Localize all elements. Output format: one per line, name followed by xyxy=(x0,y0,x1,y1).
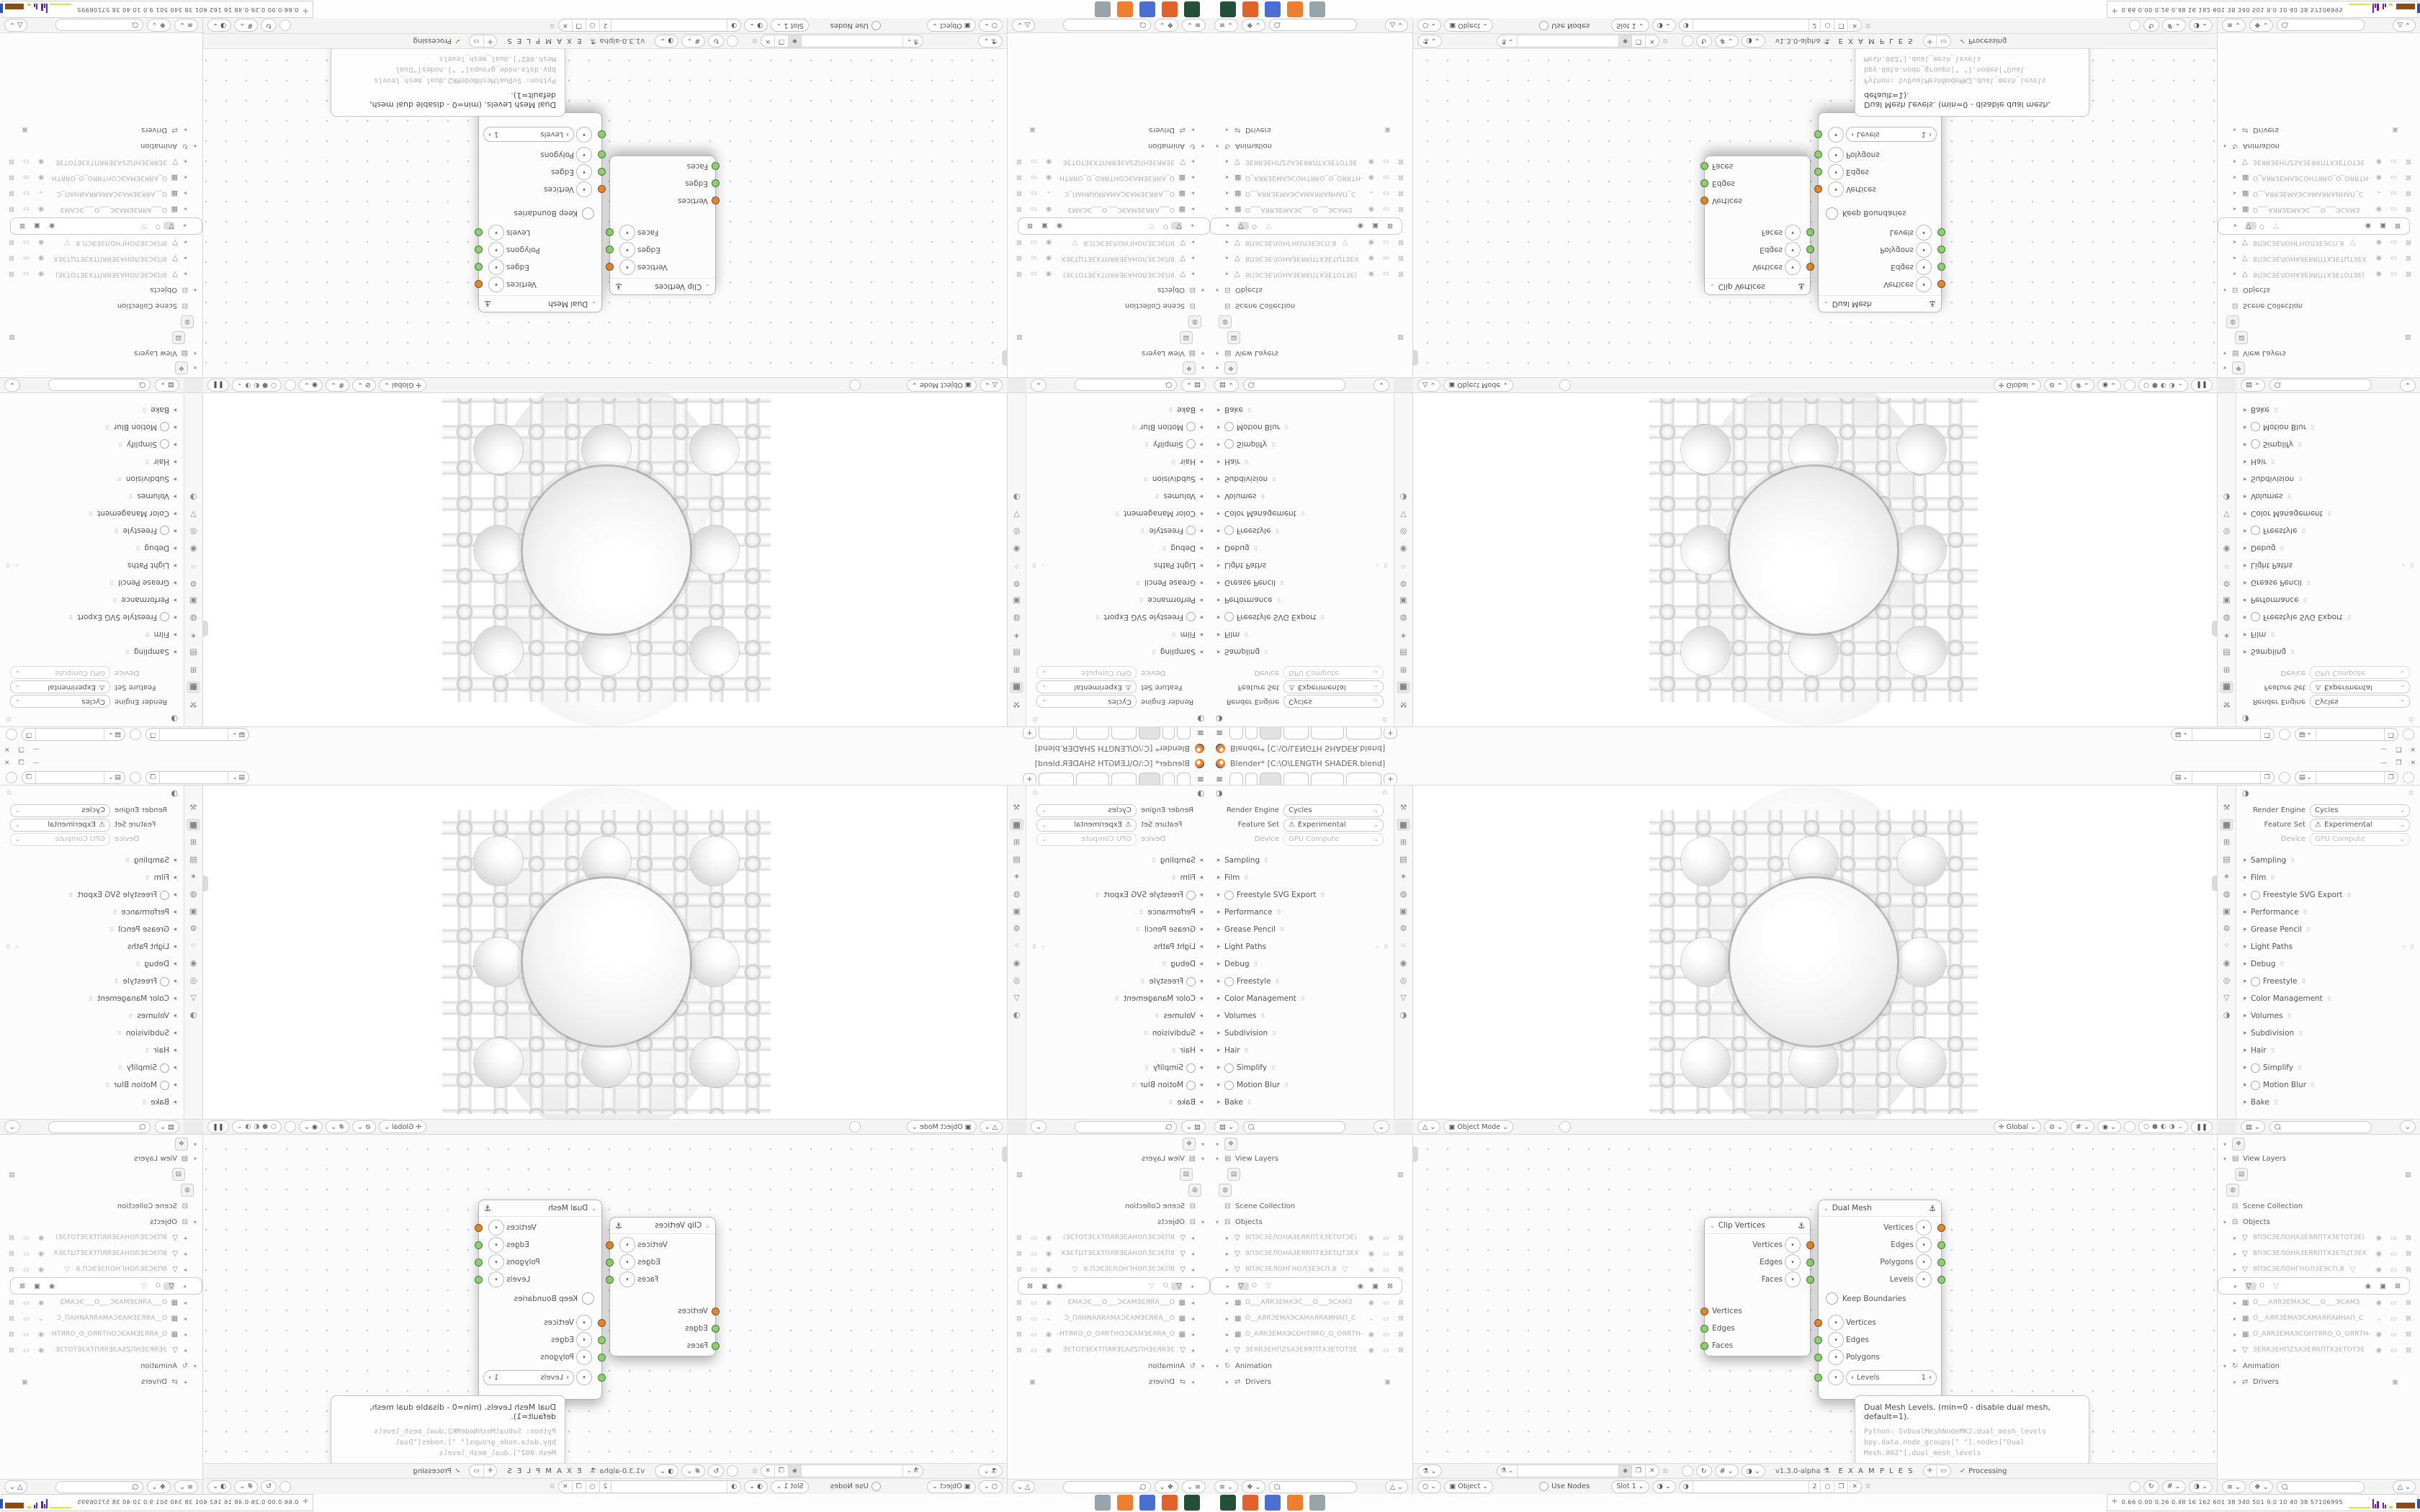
properties-tab[interactable]: ✶ xyxy=(187,870,200,883)
tree-name-field[interactable] xyxy=(1518,35,1619,47)
node-clip-vertices[interactable]: ⌄Clip Vertices⚓ Vertices▾ Edges▾ Faces▾ … xyxy=(609,1217,716,1356)
shading-mode-group[interactable]: ○ ● ◐ ◑ ⌄ xyxy=(2138,379,2188,392)
object-name[interactable]: O xyxy=(156,1282,161,1290)
properties-section[interactable]: ▸ Motion Blur ⁘ ⠿ xyxy=(2236,418,2420,436)
object-name[interactable]: O___АЯRЗЕМАЭС___O___ЭСАМЗ xyxy=(1067,206,1175,213)
outliner-object-row[interactable]: ▸ ▽ O ▽ ◉ ▣ ⊠ xyxy=(10,1277,202,1295)
viewport-disable-toggle[interactable]: ▭ xyxy=(23,1331,30,1338)
keep-boundaries-checkbox[interactable] xyxy=(1826,207,1838,220)
outliner-object-row[interactable]: ▸ ▽ ЗЕЯRЗЕНПZSАЗЕЯRПТХЗЕТОТЗЕ ◉ ▭ ⊠ xyxy=(0,154,202,170)
tool-button-a[interactable]: ✛ xyxy=(483,1465,497,1477)
increment-icon[interactable]: › xyxy=(488,1374,491,1382)
render-disable-toggle[interactable]: ⊠ xyxy=(9,1315,14,1323)
scene-collection-label[interactable]: Scene Collection xyxy=(117,302,177,310)
object-name[interactable]: O xyxy=(156,222,161,230)
expand-icon[interactable]: ▸ xyxy=(1226,159,1234,166)
output-socket-edges[interactable] xyxy=(606,246,614,254)
menu-item[interactable] xyxy=(1516,22,1526,30)
blank-toggle[interactable] xyxy=(2129,1481,2141,1493)
properties-tab[interactable]: ▽ xyxy=(1010,991,1023,1004)
outliner-object-row[interactable]: ▸ ▦ O___АЯRЗЕМАЭС___O___ЭСАМЗ ◉ ▭ ⊠ xyxy=(0,202,202,217)
menu-item[interactable] xyxy=(936,37,946,45)
expand-icon[interactable]: ▸ xyxy=(1186,1331,1194,1338)
editor-type-select[interactable]: ⚗⌄ xyxy=(979,35,1003,48)
hide-toggle[interactable]: ◉ xyxy=(2376,1346,2382,1354)
taskbar-app-icon[interactable] xyxy=(1265,1,1281,17)
output-socket-edges[interactable] xyxy=(475,1241,483,1249)
output-socket-edges[interactable] xyxy=(606,1259,614,1266)
render-disable-toggle[interactable]: ⊠ xyxy=(2406,1331,2411,1338)
device-select[interactable]: GPU Compute⌄ xyxy=(1283,833,1384,846)
snap-toggle[interactable]: ↻ xyxy=(708,35,724,48)
scene-collection-label[interactable]: Scene Collection xyxy=(1125,1202,1185,1210)
object-name[interactable]: 8ПЭСЗЕЛОНАЗЕЯRПТХЗЕТЦТЗЕХ xyxy=(2253,1250,2367,1257)
expand-icon[interactable]: ▸ xyxy=(178,191,187,197)
keep-boundaries-checkbox[interactable] xyxy=(582,207,594,220)
render-disable-toggle[interactable]: ⊠ xyxy=(2406,1299,2411,1307)
outliner-object-row[interactable]: ▸ ▦ O__АЯRЗЕМАЭСАМАЯRАИНАП_С ⌄ ▭ ⊠ xyxy=(1210,186,1412,202)
shader-mode-select[interactable]: ▣Object⌄ xyxy=(1444,19,1493,32)
viewport-disable-toggle[interactable]: ▭ xyxy=(2390,1315,2397,1323)
menu-item[interactable] xyxy=(864,1122,874,1131)
outliner-object-row[interactable]: ▸ ▽ 8ПЭСЗЕЛОНГНОЛЗЕЭСП.8 ▽ ◉ ▭ ⊠ xyxy=(2218,1261,2420,1277)
viewport-disable-toggle[interactable]: ▭ xyxy=(1383,206,1389,214)
viewport-disable-toggle[interactable]: ▭ xyxy=(23,206,30,214)
section-toggle[interactable] xyxy=(2251,423,2260,432)
properties-tab[interactable]: ◑ xyxy=(1010,491,1023,503)
increment-icon[interactable]: › xyxy=(1929,131,1932,139)
section-toggle[interactable] xyxy=(1186,891,1196,900)
properties-tab[interactable]: ⚙ xyxy=(187,922,200,935)
objects-collection-label[interactable]: Objects xyxy=(1235,1218,1263,1226)
outliner-object-row[interactable]: ▸ ▦ O__АЯRЗЕМАЭСАМАЯRАИНАП_С ⌄ ▭ ⊠ xyxy=(2218,186,2420,202)
properties-tab[interactable]: ✶ xyxy=(1397,629,1410,642)
close-button[interactable]: ✕ xyxy=(2410,760,2416,767)
outliner-object-row[interactable]: ▸ ▽ 8ПЭСЗЕЛОНГНОЛЗЕЭСП.8 ▽ ◉ ▭ ⊠ xyxy=(1210,1261,1412,1277)
viewport-3d[interactable] xyxy=(203,393,1007,726)
section-toggle[interactable] xyxy=(1186,1063,1196,1073)
object-name[interactable]: 8ПЭСЗЕЛОНГНОЛЗЕЭСП.8 xyxy=(2253,239,2344,246)
properties-section[interactable]: ▸ Volumes ⁘ ⠿ xyxy=(1026,1007,1210,1025)
node-clip-vertices[interactable]: ⌄Clip Vertices⚓ Vertices▾ Edges▾ Faces▾ … xyxy=(609,156,716,295)
viewport-disable-toggle[interactable]: ▭ xyxy=(1031,255,1037,263)
output-socket-polygons[interactable] xyxy=(475,246,483,254)
layer-icon[interactable]: ▤ xyxy=(1227,1168,1240,1181)
material-name-field[interactable] xyxy=(611,1481,727,1493)
expand-icon[interactable]: ▸ xyxy=(1226,207,1234,213)
filter-icon[interactable]: ❖ xyxy=(1224,1138,1237,1151)
node-tree-selector[interactable]: ⚗⌄ ◈ ❐ ✕ xyxy=(761,35,923,48)
properties-section[interactable]: ▸ Film ⁘ ⠿ xyxy=(0,869,184,886)
material-selector[interactable]: ◑ 2 ○ ❐ ✕ xyxy=(1679,1480,1862,1493)
properties-section[interactable]: ▸ Performance ⁘ ⠿ xyxy=(1210,904,1394,921)
properties-section[interactable]: ▸ Grease Pencil ⁘ ⠿ xyxy=(0,574,184,591)
hide-toggle[interactable]: ◉ xyxy=(49,222,55,230)
menu-item[interactable] xyxy=(1496,22,1506,30)
render-disable-toggle[interactable]: ⊠ xyxy=(1398,190,1404,198)
socket-menu-button[interactable]: ▾ xyxy=(1785,1254,1801,1270)
properties-tab[interactable]: ✶ xyxy=(187,629,200,642)
section-toggle[interactable] xyxy=(160,1081,169,1090)
scene-selector[interactable]: ▤⌄ ❐ xyxy=(145,728,249,741)
viewport-disable-toggle[interactable]: ▭ xyxy=(1383,1250,1389,1258)
close-button[interactable]: ✕ xyxy=(4,760,10,767)
properties-tab[interactable]: ✶ xyxy=(1010,629,1023,642)
socket-link-button[interactable]: ▾ xyxy=(576,127,592,143)
animation-label[interactable]: Animation xyxy=(1148,1362,1185,1370)
fake-user-button[interactable]: ◈ xyxy=(788,35,801,47)
expand-icon[interactable]: ▸ xyxy=(1226,175,1234,181)
properties-tab[interactable]: ▤ xyxy=(1397,853,1410,865)
hide-toggle[interactable]: ◉ xyxy=(1057,222,1062,230)
expand-icon[interactable]: ▸ xyxy=(178,1331,187,1338)
properties-tab[interactable]: ◎ xyxy=(1010,526,1023,538)
expand-icon[interactable]: ▸ xyxy=(1226,271,1234,278)
properties-tab[interactable]: ◉ xyxy=(1397,957,1410,969)
properties-tab[interactable]: ✶ xyxy=(1010,870,1023,883)
expand-icon[interactable]: ▸ xyxy=(1186,271,1194,278)
object-name[interactable]: O___АЯRЗЕМАЭС___O___ЭСАМЗ xyxy=(2253,1299,2360,1306)
menu-item[interactable] xyxy=(904,22,914,30)
scene-name-field[interactable] xyxy=(2192,729,2261,740)
output-socket-edges[interactable] xyxy=(1806,1259,1814,1266)
properties-section[interactable]: ▸ Grease Pencil ⁘ ⠿ xyxy=(1026,921,1210,938)
properties-tab[interactable]: ◍ xyxy=(1397,612,1410,624)
outliner-object-row[interactable]: ▸ ▦ O__АЯRЗЕМАЭСАМАЯRАИНАП_С ⌄ ▭ ⊠ xyxy=(2218,1310,2420,1326)
tool-button-a[interactable]: ✛ xyxy=(483,35,497,47)
section-toggle[interactable] xyxy=(1224,440,1234,449)
workspace-tab[interactable] xyxy=(1260,773,1281,786)
node-editor[interactable]: ⌄Clip Vertices⚓ Vertices▾ Edges▾ Faces▾ … xyxy=(1413,1135,2217,1463)
viewport-disable-toggle[interactable]: ▭ xyxy=(1031,190,1037,198)
object-name[interactable]: O___АЯRЗЕМАЭС___O___ЭСАМЗ xyxy=(60,1299,167,1306)
menu-item[interactable] xyxy=(1536,1122,1546,1131)
taskbar-app-icon[interactable] xyxy=(1139,1495,1155,1511)
expand-icon[interactable]: ▸ xyxy=(2233,1266,2242,1273)
render-disable-toggle[interactable]: ⊠ xyxy=(9,1266,14,1274)
properties-section[interactable]: ▸ Debug ⁘ ⠿ xyxy=(1210,955,1394,973)
hide-toggle[interactable]: ◉ xyxy=(1046,271,1052,279)
properties-section[interactable]: ▸ Freestyle ⁘ ⠿ xyxy=(1026,973,1210,990)
properties-section[interactable]: ▸ Sampling ⁘ ⠿ xyxy=(2236,852,2420,869)
outliner-object-row[interactable]: ▸ ▽ O ▽ ◉ ▣ ⊠ xyxy=(10,217,202,235)
add-workspace-button[interactable]: + xyxy=(1384,727,1397,739)
properties-section[interactable]: ▸ Simplify ⁘ ⠿ xyxy=(2236,436,2420,453)
expand-icon[interactable]: ▸ xyxy=(178,175,187,181)
shader-mode-select[interactable]: ▣Object⌄ xyxy=(1444,1480,1493,1493)
expand-icon[interactable]: ▸ xyxy=(178,256,187,262)
shading-rendered-icon[interactable]: ◑ xyxy=(2169,1123,2175,1130)
pin-icon[interactable]: ☆ xyxy=(1865,22,1871,30)
hide-toggle[interactable]: ⌄ xyxy=(38,1315,44,1323)
scene-collection-label[interactable]: Scene Collection xyxy=(1235,302,1295,310)
render-disable-toggle[interactable]: ⊠ xyxy=(1398,1250,1404,1258)
viewport-disable-toggle[interactable]: ▭ xyxy=(23,190,30,198)
output-socket-faces[interactable] xyxy=(606,1276,614,1284)
header-extra-button[interactable] xyxy=(1559,379,1571,391)
toolbar-toggle-handle[interactable] xyxy=(1002,350,1007,366)
properties-section[interactable]: ▸ Film ⁘ ⠿ xyxy=(0,626,184,643)
socket-link-button[interactable]: ▾ xyxy=(576,1332,592,1348)
output-socket-vertices[interactable] xyxy=(475,281,483,289)
collapse-icon[interactable]: ⌄ xyxy=(705,284,710,290)
outliner-object-row[interactable]: ▸ ▽ 8ПЭСЗЕЛОНГНОЛЗЕЭСП.8 ▽ ◉ ▭ ⊠ xyxy=(1210,235,1412,251)
properties-tab[interactable]: ◍ xyxy=(187,612,200,624)
world-icon[interactable]: ◍ xyxy=(1188,1184,1201,1197)
layer-icon[interactable]: ▤ xyxy=(1227,331,1240,344)
hide-toggle[interactable]: ⌄ xyxy=(2376,1315,2382,1323)
outliner-object-row[interactable]: ▸ ▦ O__АЯRЗЕМАЭСАМАЯRАИНАП_С ⌄ ▭ ⊠ xyxy=(0,186,202,202)
socket-menu-button[interactable]: ▾ xyxy=(488,1254,504,1270)
menu-item[interactable] xyxy=(894,22,904,30)
socket-menu-button[interactable]: ▾ xyxy=(1916,1237,1932,1253)
output-socket-polygons[interactable] xyxy=(1937,1259,1945,1266)
properties-section[interactable]: ▸ Film ⁘ ⠿ xyxy=(2236,869,2420,886)
properties-tab[interactable]: ◑ xyxy=(1397,491,1410,503)
menu-item[interactable] xyxy=(966,1467,976,1475)
properties-section[interactable]: ▸ Simplify ⁘ ⠿ xyxy=(0,436,184,453)
object-name[interactable]: ЗЕЯRЗЕНПZSАЗЕЯRПТХЗЕТОТЗЕ xyxy=(1063,1346,1175,1354)
properties-section[interactable]: ▸ Bake ⁘ ⠿ xyxy=(2236,1094,2420,1111)
hide-toggle[interactable]: ◉ xyxy=(1358,222,1363,230)
properties-section[interactable]: ▸ Simplify ⁘ ⠿ xyxy=(2236,1059,2420,1076)
menu-item[interactable] xyxy=(946,1467,956,1475)
filter-icon[interactable]: ❖ xyxy=(1183,1138,1196,1151)
viewport-disable-toggle[interactable]: ▭ xyxy=(23,1266,30,1274)
node-tree-selector[interactable]: ⚗⌄ ◈ ❐ ✕ xyxy=(761,1464,923,1477)
overlay-select[interactable]: ◑⌄ xyxy=(655,35,678,48)
header-extra-button[interactable] xyxy=(1559,1121,1571,1133)
object-name[interactable]: O_АЯRЗЕМАЭСОНТЯRО_O_ОЯRТН- xyxy=(2253,174,2371,181)
properties-section[interactable]: ▸ Hair ⁘ ⠿ xyxy=(1210,453,1394,470)
properties-section[interactable]: ▸ Hair ⁘ ⠿ xyxy=(2236,453,2420,470)
object-name[interactable]: 8ПЭСЗЕЛОНАЗЕЯRПТХЗЕТОТЗЕ) xyxy=(55,1234,167,1241)
fake-user-button[interactable]: ○ xyxy=(1821,20,1834,32)
filter-icon[interactable]: ❖ xyxy=(2232,361,2245,374)
properties-tab[interactable]: ◉ xyxy=(1010,957,1023,969)
object-name[interactable]: 8ПЭСЗЕЛОНГНОЛЗЕЭСП.8 xyxy=(1245,1266,1337,1273)
expand-icon[interactable]: ▸ xyxy=(1226,256,1234,262)
shading-solid-icon[interactable]: ● xyxy=(262,382,268,389)
properties-tab[interactable]: ⁘ xyxy=(1397,560,1410,572)
scene-selector[interactable]: ▤⌄ ❐ xyxy=(2171,728,2275,741)
device-select[interactable]: GPU Compute⌄ xyxy=(1036,833,1137,846)
viewlayer-selector[interactable]: ▤⌄ ❐ xyxy=(22,771,125,784)
properties-section[interactable]: ▸ Subdivision ⁘ ⠿ xyxy=(1026,1025,1210,1042)
outliner-object-row[interactable]: ▸ ▦ O_АЯRЗЕМАЭСОНТЯRО_O_ОЯRТН- ◉ ▭ ⊠ xyxy=(0,170,202,186)
view-layers-label[interactable]: View Layers xyxy=(134,1155,177,1163)
properties-section[interactable]: ▸ Grease Pencil ⁘ ⠿ xyxy=(1210,921,1394,938)
properties-tab[interactable]: ▦ xyxy=(1397,819,1410,831)
properties-tab[interactable]: ⚙ xyxy=(2220,577,2233,590)
minimize-button[interactable]: — xyxy=(33,745,40,752)
viewlayer-copy-icon[interactable]: ❐ xyxy=(2385,772,2398,783)
copy-button[interactable]: ❐ xyxy=(1632,35,1646,47)
workspace-tab[interactable] xyxy=(1177,726,1191,739)
socket-menu-button[interactable]: ▾ xyxy=(1785,225,1801,240)
menu-item[interactable] xyxy=(1496,1482,1506,1491)
camera-icon[interactable]: ▦ xyxy=(1397,334,1404,342)
viewlayer-unlink-button[interactable] xyxy=(2403,729,2414,740)
properties-tab[interactable]: ◑ xyxy=(2220,491,2233,503)
hide-toggle[interactable]: ◉ xyxy=(1368,1266,1374,1274)
hide-toggle[interactable]: ◉ xyxy=(1368,174,1374,182)
properties-section[interactable]: ▸ Light Paths ⁘ ⠿ xyxy=(1026,938,1210,955)
expand-icon[interactable]: ▸ xyxy=(2233,1315,2242,1322)
properties-section[interactable]: ▸ Debug ⁘ ⠿ xyxy=(1026,539,1210,557)
properties-tab[interactable]: ▤ xyxy=(2220,647,2233,659)
display-mode-select[interactable]: ≡⌄ xyxy=(174,1480,198,1493)
editor-type-select[interactable]: △⌄ xyxy=(1417,379,1440,392)
decrement-icon[interactable]: ‹ xyxy=(566,131,569,139)
output-socket-levels[interactable] xyxy=(475,1276,483,1284)
output-socket-edges[interactable] xyxy=(1937,264,1945,271)
menu-item[interactable] xyxy=(884,1482,894,1491)
examples-menu[interactable]: E X A M P L E S xyxy=(506,1467,581,1475)
material-name-field[interactable] xyxy=(1693,1481,1809,1493)
render-disable-toggle[interactable]: ⊠ xyxy=(1387,1282,1393,1290)
menu-item[interactable] xyxy=(936,1467,946,1475)
snap-toggle[interactable]: ↻ xyxy=(2143,1480,2159,1493)
properties-tab[interactable]: ▤ xyxy=(187,853,200,865)
expand-icon[interactable]: ▸ xyxy=(1186,1251,1194,1257)
menu-item[interactable] xyxy=(1445,1467,1455,1475)
outliner-object-row[interactable]: ▸ ▦ O_АЯRЗЕМАЭСОНТЯRО_O_ОЯRТН- ◉ ▭ ⊠ xyxy=(2218,1326,2420,1342)
hide-toggle[interactable]: ⌄ xyxy=(1046,190,1052,198)
device-select[interactable]: GPU Compute⌄ xyxy=(10,833,110,846)
viewport-disable-toggle[interactable]: ▭ xyxy=(23,158,30,166)
hide-toggle[interactable]: ◉ xyxy=(1046,1266,1052,1274)
workspace-tab[interactable] xyxy=(1177,773,1191,786)
outliner-object-row[interactable]: ▸ ▽ 8ПЭСЗЕЛОНГНОЛЗЕЭСП.8 ▽ ◉ ▭ ⊠ xyxy=(1008,1261,1210,1277)
section-toggle[interactable] xyxy=(1186,526,1196,536)
editor-type-select[interactable]: △⌄ xyxy=(980,379,1003,392)
properties-section[interactable]: ▸ Performance ⁘ ⠿ xyxy=(1026,904,1210,921)
view-layers-label[interactable]: View Layers xyxy=(2243,1155,2286,1163)
layer-icon[interactable]: ▤ xyxy=(1180,331,1193,344)
socket-menu-button[interactable]: ▾ xyxy=(619,1272,635,1287)
outliner-object-row[interactable]: ▸ ▽ 8ПЭСЗЕЛОНАЗЕЯRПТХЗЕТОТЗЕ) ◉ ▭ ⊠ xyxy=(0,266,202,282)
input-socket-polygons[interactable] xyxy=(1814,1354,1822,1362)
output-socket-faces[interactable] xyxy=(1806,229,1814,237)
properties-section[interactable]: ▸ Freestyle SVG Export ⁘ ⠿ xyxy=(0,886,184,904)
camera-icon[interactable]: ▦ xyxy=(1016,1171,1023,1179)
properties-tab[interactable]: ▤ xyxy=(2220,853,2233,865)
editor-type-select[interactable]: △⌄ xyxy=(1417,1120,1440,1133)
filter-icon[interactable]: ❖ xyxy=(2232,1138,2245,1151)
pin-icon[interactable]: ☆ xyxy=(751,1467,758,1475)
output-socket-vertices[interactable] xyxy=(606,1241,614,1249)
outliner-filter-select[interactable]: ❖⌄ xyxy=(1155,19,1179,32)
scene-unlink-button[interactable] xyxy=(130,729,141,740)
pin-icon[interactable]: ☆ xyxy=(1662,1467,1669,1475)
properties-section[interactable]: ▸ Performance ⁘ ⠿ xyxy=(1026,591,1210,608)
properties-tab[interactable]: ▽ xyxy=(2220,508,2233,521)
properties-section[interactable]: ▸ Freestyle SVG Export ⁘ ⠿ xyxy=(1026,608,1210,626)
blank-toggle[interactable] xyxy=(279,20,291,32)
output-socket-edges[interactable] xyxy=(1806,246,1814,254)
levels-slider[interactable]: ‹ Levels 1 › xyxy=(483,1370,574,1385)
filter-icon[interactable]: ❖ xyxy=(175,361,188,374)
menu-item[interactable] xyxy=(1546,381,1556,390)
properties-section[interactable]: ▸ Film ⁘ ⠿ xyxy=(2236,626,2420,643)
properties-section[interactable]: ▸ Bake ⁘ ⠿ xyxy=(1026,1094,1210,1111)
workspace-tab[interactable] xyxy=(1283,726,1309,739)
object-name[interactable]: O___АЯRЗЕМАЭС___O___ЭСАМЗ xyxy=(1245,206,1353,213)
blank-toggle[interactable] xyxy=(1682,35,1693,47)
expand-icon[interactable]: ▸ xyxy=(1226,240,1234,246)
socket-menu-button[interactable]: ▾ xyxy=(488,259,504,275)
viewlayer-name-field[interactable] xyxy=(35,772,104,783)
socket-menu-button[interactable]: ▾ xyxy=(619,259,635,275)
camera-icon[interactable]: ▦ xyxy=(2405,1171,2411,1179)
hide-toggle[interactable]: ⌄ xyxy=(38,190,44,198)
expand-icon[interactable]: ▸ xyxy=(1226,1315,1234,1322)
pin-icon[interactable]: ☆ xyxy=(1032,716,1039,724)
collapse-icon[interactable]: ⌄ xyxy=(1824,301,1829,307)
hide-toggle[interactable]: ◉ xyxy=(38,1346,44,1354)
node-clip-vertices[interactable]: ⌄Clip Vertices⚓ Vertices▾ Edges▾ Faces▾ … xyxy=(1704,1217,1811,1356)
collapse-icon[interactable]: ⌄ xyxy=(1710,284,1715,290)
expand-icon[interactable]: ▸ xyxy=(178,1235,187,1241)
render-disable-toggle[interactable]: ⊠ xyxy=(1398,1315,1404,1323)
expand-icon[interactable]: ▸ xyxy=(178,1300,187,1306)
socket-menu-button[interactable]: ▾ xyxy=(619,1254,635,1270)
expand-icon[interactable]: ▸ xyxy=(1186,240,1194,246)
overlay-select[interactable]: ◑⌄ xyxy=(1742,1464,1765,1477)
node-tree-selector[interactable]: ⚗⌄ ◈ ❐ ✕ xyxy=(1497,35,1659,48)
material-preview-select[interactable]: ◑⌄ xyxy=(1652,1480,1676,1493)
render-disable-toggle[interactable]: ⊠ xyxy=(2406,271,2411,279)
hide-toggle[interactable]: ⌄ xyxy=(1046,1315,1052,1323)
pin-icon[interactable]: ☆ xyxy=(1032,789,1039,797)
properties-section[interactable]: ▸ Sampling ⁘ ⠿ xyxy=(0,852,184,869)
render-disable-toggle[interactable]: ⊠ xyxy=(1016,271,1022,279)
pin-icon[interactable]: ☆ xyxy=(549,1482,555,1490)
node-pin-icon[interactable]: ⚓ xyxy=(1798,282,1805,292)
node-dual-mesh[interactable]: ⌄Dual Mesh⚓ Vertices▾ Edges▾ Polygons▾ L… xyxy=(1818,112,1942,312)
viewport-disable-toggle[interactable]: ▭ xyxy=(23,1346,30,1354)
menu-item[interactable] xyxy=(1465,1467,1475,1475)
menu-icon[interactable]: ≡ xyxy=(1216,728,1223,738)
properties-tab[interactable]: ▽ xyxy=(1397,508,1410,521)
shading-material-icon[interactable]: ◐ xyxy=(2161,382,2166,389)
properties-filter-button[interactable]: ▤⌄ xyxy=(2241,379,2265,392)
socket-menu-button[interactable]: ▾ xyxy=(619,242,635,258)
shading-material-icon[interactable]: ◐ xyxy=(254,382,259,389)
menu-item[interactable] xyxy=(894,1122,904,1131)
viewlayer-unlink-button[interactable] xyxy=(6,729,17,740)
editor-type-select[interactable]: ○⌄ xyxy=(1417,1480,1441,1493)
section-toggle[interactable] xyxy=(160,891,169,900)
outliner-object-row[interactable]: ▸ ▽ 8ПЭСЗЕЛОНАЗЕЯRПТХЗЕТЦТЗЕХ ◉ ▭ ⊠ xyxy=(1008,251,1210,266)
filter-options-button[interactable]: △⌄ xyxy=(1385,19,1408,32)
outliner-object-row[interactable]: ▸ ▽ ЗЕЯRЗЕНПZSАЗЕЯRПТХЗЕТОТЗЕ ◉ ▭ ⊠ xyxy=(1210,154,1412,170)
workspace-tab[interactable] xyxy=(1245,726,1258,739)
properties-tab[interactable]: ⚒ xyxy=(1397,801,1410,814)
object-name[interactable]: O__АЯRЗЕМАЭСАМАЯRАИНАП_С xyxy=(57,190,167,197)
levels-slider[interactable]: ‹ Levels 1 › xyxy=(483,127,574,143)
scene-collection-label[interactable]: Scene Collection xyxy=(1235,1202,1295,1210)
socket-menu-button[interactable]: ▾ xyxy=(1785,259,1801,275)
properties-section[interactable]: ▸ Hair ⁘ ⠿ xyxy=(1210,1042,1394,1059)
view-layers-label[interactable]: View Layers xyxy=(134,350,177,358)
feature-set-select[interactable]: ⚠Experimental⌄ xyxy=(2310,819,2410,832)
properties-section[interactable]: ▸ Film ⁘ ⠿ xyxy=(1026,869,1210,886)
properties-tab[interactable]: ◍ xyxy=(1010,888,1023,900)
device-select[interactable]: GPU Compute⌄ xyxy=(1036,667,1137,680)
shader-mode-select[interactable]: ▣Object⌄ xyxy=(927,1480,976,1493)
